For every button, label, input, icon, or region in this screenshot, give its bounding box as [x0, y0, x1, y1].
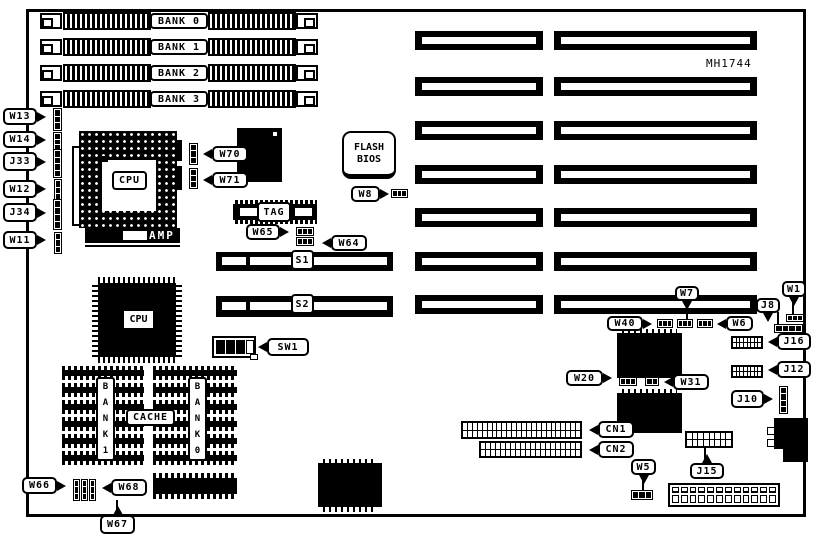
power-pin-top — [707, 487, 714, 493]
expansion-slot-right-contact — [561, 301, 750, 308]
cn2-connector-pin — [501, 450, 505, 456]
cn1-connector-pin — [566, 423, 570, 430]
w65-jumper — [296, 227, 314, 236]
w64-jumper-pin — [303, 239, 307, 244]
simm-clip-right-inner — [304, 18, 315, 28]
power-pin-bottom — [672, 495, 679, 503]
simm-contacts — [63, 38, 151, 56]
j16-pointer — [768, 337, 777, 347]
power-pin-top — [769, 487, 776, 493]
cn2-connector-pin — [531, 450, 535, 456]
cpu-socket-tab-1 — [176, 140, 182, 161]
simm-bank-label: BANK 0 — [150, 13, 208, 29]
w31-pointer — [664, 377, 673, 387]
w11-pointer — [37, 235, 46, 245]
power-pin-top — [690, 487, 697, 493]
j16-header-pin — [751, 338, 754, 342]
cn1-connector-pin — [493, 431, 497, 438]
w13-pointer — [37, 112, 46, 122]
vertical-bank-letter: B — [103, 382, 108, 392]
expansion-slot-left-contact — [422, 214, 536, 221]
w6-jumper-pin — [708, 321, 711, 326]
cn2-connector-pin — [516, 443, 520, 449]
j15-header-pin — [704, 433, 709, 439]
j12-header-pin — [758, 367, 761, 371]
board-edge-bottom — [26, 514, 806, 517]
w70-jumper-pin — [191, 151, 196, 156]
j12-callout-label: J12 — [777, 361, 811, 378]
j16-header-pin — [755, 343, 758, 347]
cn2-connector-pin — [546, 450, 550, 456]
power-pin-bottom — [751, 495, 758, 503]
io-chip3 — [318, 463, 382, 507]
w65-jumper-pin — [303, 229, 307, 234]
sw1-switch-1 — [216, 340, 225, 354]
w5-jumper-pin — [646, 492, 651, 498]
vertical-bank-letter: A — [103, 398, 108, 408]
cpu-socket-brand: AMP — [149, 229, 175, 242]
w6-pointer — [717, 319, 726, 329]
expansion-slot-right-contact — [561, 171, 750, 178]
j15-header-pin — [698, 433, 703, 439]
cn1-connector-pin — [502, 431, 506, 438]
w20-pointer — [603, 373, 612, 383]
w67-pointer — [113, 506, 123, 515]
j16-header — [731, 336, 763, 349]
cn1-connector-pin — [507, 431, 511, 438]
sw1-callout-label: SW1 — [267, 338, 309, 356]
cn1-connector-pin — [542, 423, 546, 430]
w65-callout-label: W65 — [246, 224, 280, 240]
keyboard-connector-pad2 — [767, 439, 775, 447]
w66-jumper-a-pin — [75, 481, 78, 486]
w11-jumper-pin — [56, 234, 60, 239]
vertical-bank-letter: 0 — [195, 446, 200, 456]
cn1-connector-pin — [483, 423, 487, 430]
w64-jumper-pin — [308, 239, 312, 244]
power-pin-top — [743, 487, 750, 493]
j16-header-pin — [740, 338, 743, 342]
w68-callout-label: W68 — [111, 479, 147, 496]
cn2-connector-pin — [556, 450, 560, 456]
w67-callout-label: W67 — [100, 515, 135, 534]
j16-header-pin — [733, 343, 736, 347]
w71-jumper-pin — [191, 176, 196, 181]
simm-contacts — [208, 12, 296, 30]
power-pin-bottom — [690, 495, 697, 503]
j12-header-pin — [744, 367, 747, 371]
cn1-connector-pin — [468, 431, 472, 438]
j16-header-pin — [737, 338, 740, 342]
cn1-connector-pin — [488, 431, 492, 438]
w31-jumper-pin — [647, 379, 652, 384]
w40-pointer — [643, 319, 652, 329]
tag-socket-slot-right — [295, 208, 312, 216]
s1-slot-key1 — [222, 257, 246, 265]
w13-callout-label: W13 — [3, 108, 37, 125]
w20-callout-label: W20 — [566, 370, 603, 386]
cn1-connector-pin — [556, 423, 560, 430]
j16-header-pin — [733, 338, 736, 342]
simm-clip-left-inner — [42, 18, 53, 28]
cn2-connector-pin — [531, 443, 535, 449]
w66-jumper-a-pin — [75, 494, 78, 499]
j16-header-pin — [758, 343, 761, 347]
j8-callout-label: J8 — [756, 298, 780, 313]
simm-clip-left-inner — [42, 96, 53, 106]
vertical-bank-letter: N — [103, 414, 108, 424]
power-pin-top — [725, 487, 732, 493]
cn1-connector-pin — [542, 431, 546, 438]
w14-pointer — [37, 135, 46, 145]
simm-clip-right-inner — [304, 96, 315, 106]
w66-jumper-c-pin — [91, 487, 94, 492]
cn2-connector-pin — [491, 443, 495, 449]
cn2-connector-pin — [561, 443, 565, 449]
w71-jumper — [189, 168, 198, 189]
w6-jumper-pin — [699, 321, 702, 326]
cpu-socket-pin1-mark — [102, 156, 108, 162]
vertical-bank-letter: A — [195, 398, 200, 408]
cn1-connector-pin — [478, 423, 482, 430]
vertical-bank-letter: K — [195, 430, 200, 440]
cn1-connector-pin — [473, 431, 477, 438]
cn2-connector-pin — [511, 443, 515, 449]
w8-jumper — [391, 189, 408, 198]
cn1-connector-pin — [507, 423, 511, 430]
power-pin-top-row — [672, 487, 776, 493]
cn2-connector-pin — [521, 443, 525, 449]
cn2-connector-pin — [566, 443, 570, 449]
cn2-connector-pin — [506, 450, 510, 456]
cn1-connector-pin — [478, 431, 482, 438]
power-pin-bottom — [743, 495, 750, 503]
w20-jumper — [619, 377, 637, 386]
cn2-connector-pin — [536, 443, 540, 449]
j12-header-pin — [733, 372, 736, 376]
expansion-slot-left-contact — [422, 127, 536, 134]
j33-jumper-pin — [55, 164, 60, 170]
cache-bank1-label: BANK1 — [96, 377, 115, 461]
board-edge-left — [26, 9, 29, 514]
j10-pointer — [764, 394, 773, 404]
power-pin-bottom — [769, 495, 776, 503]
j16-header-pin — [758, 338, 761, 342]
expansion-slot-left-contact — [422, 83, 536, 90]
cn2-connector-pin — [516, 450, 520, 456]
cn1-connector-pin — [556, 431, 560, 438]
j15-header-pin — [721, 433, 726, 439]
w1-callout-label: W1 — [782, 281, 806, 297]
j12-header-pin — [744, 372, 747, 376]
w7-callout-label: W7 — [675, 286, 699, 301]
chipset-chip-pin1-dot — [273, 132, 277, 136]
cn1-connector-pin — [561, 423, 565, 430]
w66-jumper-b — [81, 479, 88, 501]
cn2-connector-pin — [541, 443, 545, 449]
w20-jumper-pin — [621, 379, 625, 384]
j15-header-pin — [693, 433, 698, 439]
w11-callout-label: W11 — [3, 231, 37, 249]
expansion-slot-right-contact — [561, 83, 750, 90]
cache-bank0-label: BANK0 — [188, 377, 207, 461]
cn2-connector-pin — [551, 443, 555, 449]
simm-contacts — [208, 90, 296, 108]
cn1-connector-pin — [571, 423, 575, 430]
s2-slot-key3 — [314, 302, 387, 310]
w66-jumper-b-pin — [83, 494, 86, 499]
w5-pointer — [639, 475, 649, 484]
j34-jumper-pin — [55, 201, 60, 207]
cn1-connector-pin — [488, 423, 492, 430]
w66-jumper-c — [89, 479, 96, 501]
io-chip1 — [617, 333, 682, 378]
cn2-pointer — [589, 445, 598, 455]
cn1-connector-pin — [517, 423, 521, 430]
expansion-slot-left-contact — [422, 171, 536, 178]
motherboard-diagram: MH1744 CPU AMP CPU FLASH BIOS TAG S1 S2 — [0, 0, 817, 538]
power-pin-top — [751, 487, 758, 493]
sw1-switch-4 — [246, 340, 254, 354]
w6-jumper-pin — [703, 321, 706, 326]
w13-jumper — [53, 108, 62, 131]
vertical-bank-letter: K — [103, 430, 108, 440]
j33-jumper-pin — [55, 151, 60, 157]
w64-callout-label: W64 — [331, 235, 367, 251]
cn1-callout-label: CN1 — [598, 421, 634, 438]
w13-jumper-pin — [55, 110, 60, 116]
j12-header-pin — [740, 367, 743, 371]
j10-jumper-pin — [781, 394, 786, 399]
flash-bios-line1: FLASH — [354, 142, 384, 154]
j15-callout-label: J15 — [690, 463, 724, 479]
expansion-slot-left-contact — [422, 258, 536, 265]
j15-header-pin — [710, 440, 715, 446]
power-connector — [668, 483, 780, 507]
cn2-connector — [479, 441, 582, 458]
cn1-connector-pin — [561, 431, 565, 438]
cpu-socket-underline — [85, 245, 180, 247]
j15-header-pin — [693, 440, 698, 446]
cn2-connector-pin — [576, 443, 580, 449]
cn1-connector-pin — [497, 423, 501, 430]
simm-contacts — [63, 90, 151, 108]
w66-pointer — [57, 481, 66, 491]
j15-header-pin — [687, 440, 692, 446]
cn1-connector-pin — [483, 431, 487, 438]
j15-header-pin — [698, 440, 703, 446]
w1-pointer — [789, 297, 799, 306]
cn2-connector-pin — [571, 450, 575, 456]
w71-callout-label: W71 — [212, 172, 248, 188]
j12-header-pin — [733, 367, 736, 371]
w40-jumper-pin — [668, 321, 671, 326]
w12-pointer — [37, 184, 46, 194]
cn2-connector-pin — [566, 450, 570, 456]
cn2-connector-pin — [496, 450, 500, 456]
j16-header-pin — [751, 343, 754, 347]
w20-jumper-pin — [631, 379, 635, 384]
s1-slot-label: S1 — [291, 250, 314, 270]
cn2-connector-pin — [551, 450, 555, 456]
j12-header-pin — [748, 372, 751, 376]
power-pin-top — [716, 487, 723, 493]
power-pin-bottom — [698, 495, 705, 503]
j8-jumper-pin — [796, 326, 802, 331]
j16-header-pin — [748, 343, 751, 347]
s2-slot-key2 — [250, 302, 292, 310]
simm-contacts — [208, 64, 296, 82]
vertical-bank-letter: N — [195, 414, 200, 424]
j34-jumper-pin — [55, 208, 60, 214]
cpu-chip-label: CPU — [124, 311, 153, 328]
tag-socket-slot-left — [240, 208, 258, 216]
power-pin-bottom — [760, 495, 767, 503]
j15-header-pin — [726, 440, 731, 446]
cn2-connector-pin — [501, 443, 505, 449]
cn2-connector-pin — [546, 443, 550, 449]
tag-chip-label: TAG — [257, 202, 291, 222]
cache-extra-chip-pins — [153, 494, 237, 499]
cn2-connector-pin — [561, 450, 565, 456]
w11-jumper — [54, 232, 62, 254]
cn2-connector-pin — [521, 450, 525, 456]
cn1-connector-pin — [547, 423, 551, 430]
j33-jumper-pin — [55, 158, 60, 164]
cn2-connector-pin — [541, 450, 545, 456]
w31-callout-label: W31 — [673, 374, 709, 390]
power-pin-top — [760, 487, 767, 493]
w7-pointer — [682, 301, 692, 310]
cn1-connector-pin — [463, 423, 467, 430]
cn1-connector-pin — [517, 431, 521, 438]
expansion-slot-right-contact — [561, 214, 750, 221]
j16-header-pin — [740, 343, 743, 347]
w70-jumper-pin — [191, 158, 196, 163]
w7-jumper — [677, 319, 693, 328]
j10-jumper-pin — [781, 401, 786, 406]
j33-jumper — [53, 149, 62, 178]
w13-jumper-pin — [55, 123, 60, 129]
io-chip3-pins-bottom — [323, 507, 377, 512]
flash-bios-line2: BIOS — [357, 154, 381, 166]
w5-jumper — [631, 490, 653, 500]
j16-header-pin — [755, 338, 758, 342]
simm-bank-label: BANK 2 — [150, 65, 208, 81]
cache-bank0-chips-pins — [153, 461, 237, 465]
w14-jumper-pin — [55, 140, 60, 145]
power-pin-top — [698, 487, 705, 493]
j12-header-pin — [751, 367, 754, 371]
w14-jumper-pin — [55, 134, 60, 139]
j34-callout-label: J34 — [3, 203, 37, 222]
expansion-slot-right-contact — [561, 37, 750, 44]
j12-pointer — [768, 365, 777, 375]
cn1-connector-pin — [512, 423, 516, 430]
cn2-connector-pin — [556, 443, 560, 449]
j12-header-pin — [751, 372, 754, 376]
w13-jumper-pin — [55, 117, 60, 123]
cn1-connector-pin — [493, 423, 497, 430]
w12-callout-label: W12 — [3, 180, 37, 198]
cn1-connector — [461, 421, 582, 439]
simm-clip-left-inner — [42, 44, 53, 54]
w11-jumper-pin — [56, 240, 60, 245]
cn1-connector-pin — [473, 423, 477, 430]
cn1-connector-pin — [527, 423, 531, 430]
j12-header-pin — [748, 367, 751, 371]
j12-header-pin — [737, 367, 740, 371]
s1-slot-key3 — [314, 257, 387, 265]
w6-callout-label: W6 — [726, 316, 753, 331]
w64-pointer — [322, 238, 331, 248]
cn1-connector-pin — [522, 423, 526, 430]
cn1-connector-pin — [527, 431, 531, 438]
j15-pointer — [702, 454, 712, 463]
w70-jumper-pin — [191, 145, 196, 150]
sw1-pointer — [258, 342, 267, 352]
power-pin-top — [672, 487, 679, 493]
expansion-slot-left-contact — [422, 37, 536, 44]
power-pin-bottom — [707, 495, 714, 503]
w40-jumper — [657, 319, 673, 328]
expansion-slot-left-contact — [422, 301, 536, 308]
w70-jumper — [189, 143, 198, 165]
cn2-connector-pin — [526, 443, 530, 449]
cn2-connector-pin — [481, 443, 485, 449]
simm-contacts — [208, 38, 296, 56]
w1-jumper-pin — [798, 316, 802, 320]
j8-jumper-pin — [776, 326, 782, 331]
w71-pointer — [203, 175, 212, 185]
j15-header-pin — [715, 433, 720, 439]
j34-pointer — [37, 208, 46, 218]
j8-pointer — [763, 313, 773, 322]
w12-jumper-pin — [56, 188, 60, 194]
cn1-connector-pin — [547, 431, 551, 438]
j15-header-pin — [726, 433, 731, 439]
j34-jumper — [53, 199, 62, 230]
w66-jumper-a — [73, 479, 80, 501]
cn1-pointer — [589, 425, 598, 435]
w66-jumper-b-pin — [83, 481, 86, 486]
j12-header-pin — [755, 367, 758, 371]
simm-clip-right-inner — [304, 44, 315, 54]
cn1-connector-pin — [571, 431, 575, 438]
j12-header-pin — [740, 372, 743, 376]
j15-header-pin — [710, 433, 715, 439]
expansion-slot-right-contact — [561, 127, 750, 134]
cn1-connector-pin — [463, 431, 467, 438]
j16-header-pin — [748, 338, 751, 342]
cn2-connector-pin — [571, 443, 575, 449]
w1-jumper — [786, 314, 804, 322]
w8-jumper-pin — [398, 191, 402, 196]
w71-jumper-pin — [191, 170, 196, 175]
w5-callout-label: W5 — [631, 459, 656, 475]
cn1-connector-pin — [468, 423, 472, 430]
cn2-connector-pin — [511, 450, 515, 456]
flash-bios-chip: FLASH BIOS — [342, 131, 396, 179]
cpu-socket-amp-window — [123, 231, 147, 240]
cn2-connector-pin — [506, 443, 510, 449]
w14-callout-label: W14 — [3, 131, 37, 148]
cache-label: CACHE — [126, 409, 175, 426]
w40-jumper-pin — [659, 321, 662, 326]
w8-jumper-pin — [402, 191, 406, 196]
cn2-connector-pin — [526, 450, 530, 456]
w7-jumper-pin — [688, 321, 691, 326]
